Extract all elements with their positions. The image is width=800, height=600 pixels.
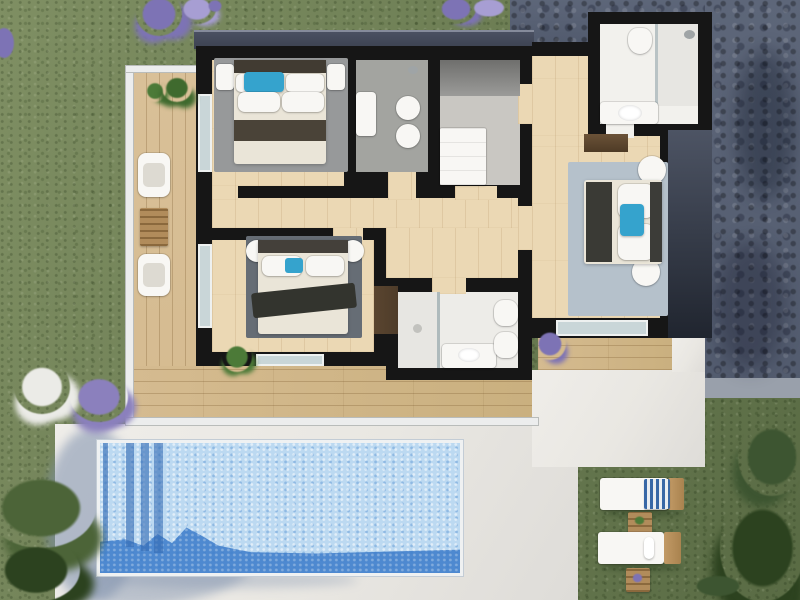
- pool-railing-shadow-1: [103, 443, 108, 543]
- armchair-2-seat: [143, 263, 165, 287]
- purple-flower-shrub: [70, 372, 128, 422]
- floor-hallway-2: [386, 228, 518, 278]
- door-bedroom-1: [212, 186, 238, 200]
- side-table-2-plant: [631, 572, 644, 584]
- terrace-window-2: [198, 244, 212, 328]
- bedroom-2-set: [246, 236, 362, 338]
- bush-bottom-right-1: [738, 418, 800, 496]
- sun-lounger-2: [598, 530, 682, 566]
- bidet-bathroom-1: [396, 124, 420, 148]
- pool-railing-shadow-3: [141, 443, 149, 551]
- floor-wing-hall: [532, 56, 588, 136]
- blue-pillow-bedroom-3: [620, 204, 644, 236]
- shower-glass-bathroom-3: [655, 24, 658, 106]
- potted-plant-bedroom-2: [222, 342, 252, 372]
- side-table-1-plant: [633, 515, 646, 526]
- blue-pillow-bedroom-1: [244, 72, 284, 92]
- tree-shadow-on-pavers-1: [736, 50, 794, 200]
- pillow-bedroom-1-a: [238, 92, 280, 112]
- shower-glass-bathroom-2: [437, 292, 440, 368]
- cabinet-bathroom-2: [374, 286, 398, 334]
- wardrobe-closet: [440, 60, 520, 96]
- patio-side-path: [672, 338, 705, 372]
- lounger-2-headrest: [664, 532, 681, 564]
- shower-head-bathroom-3: [684, 30, 695, 39]
- terrace-table: [140, 208, 168, 246]
- duvet-runner-bedroom-1: [234, 120, 326, 141]
- walls-bath2-extension: [386, 366, 532, 380]
- sink-bathroom-3: [618, 105, 642, 121]
- lounger-2-mattress: [598, 532, 664, 564]
- terrace-armchair-2: [138, 254, 170, 296]
- bush-bottom-left-2: [0, 538, 80, 600]
- throw-bedroom-2: [251, 283, 357, 319]
- terrace-armchair-1: [138, 153, 170, 197]
- door-closet: [455, 186, 497, 200]
- balustrade-west: [126, 66, 133, 424]
- bedroom-3-set: [568, 162, 668, 316]
- wing-south-window: [556, 320, 648, 336]
- lounger-1-striped-towel: [644, 479, 670, 509]
- tree-shadow-on-pavers-2: [715, 240, 785, 370]
- lounger-2-rolled-towel: [644, 537, 654, 559]
- toilet-bathroom-2: [494, 300, 518, 326]
- sink-bathroom-2: [458, 348, 480, 362]
- toilet-bathroom-1: [396, 96, 420, 120]
- nightstand-left-bedroom-1: [216, 64, 234, 90]
- sun-lounger-1: [600, 476, 684, 512]
- pool-railing-shadow-2: [126, 443, 134, 547]
- terrace-shrub-2: [162, 74, 192, 102]
- lounger-1-headrest: [668, 478, 684, 510]
- bed-bedroom-2: [258, 240, 348, 334]
- bedroom-1-set: [214, 58, 348, 172]
- pillow-bedroom-1-b: [282, 92, 324, 112]
- white-flower-shrub: [14, 360, 70, 414]
- balustrade-north: [126, 66, 206, 72]
- bed-bedroom-3: [584, 180, 662, 264]
- runner-bedroom-3: [586, 182, 612, 262]
- headboard-bedroom-3: [650, 182, 662, 262]
- bed-bedroom-1: [234, 60, 326, 164]
- armchair-1-seat: [143, 163, 165, 187]
- patio-east: [532, 370, 705, 467]
- floor-plan-render: [0, 0, 800, 600]
- balustrade-south: [126, 418, 538, 425]
- dresser-closet: [440, 128, 486, 185]
- pool-railing-shadow-4: [154, 443, 163, 553]
- nightstand-right-bedroom-1: [327, 64, 345, 90]
- door-bathroom-1: [388, 172, 416, 200]
- door-wing-upper: [518, 84, 532, 124]
- swimming-pool: [100, 443, 460, 573]
- bidet-bathroom-2: [494, 332, 518, 358]
- drain-bathroom-2: [413, 324, 422, 333]
- terrace-window-1: [198, 94, 212, 172]
- door-wing-lower: [518, 206, 532, 250]
- lavender-pot-wing: [534, 328, 566, 360]
- pool-edge-shadow: [108, 572, 358, 588]
- basin-bathroom-1: [356, 92, 376, 136]
- headboard-bedroom-2: [258, 240, 348, 253]
- shower-head-bathroom-1: [408, 66, 418, 74]
- east-wing-roof-edge: [668, 130, 712, 338]
- south-window: [256, 354, 324, 366]
- sideboard-bedroom-3: [584, 134, 628, 152]
- floor-hallway: [212, 198, 518, 228]
- toilet-bathroom-3: [628, 28, 652, 54]
- driveway-light-strip: [705, 378, 800, 398]
- blue-pillow-bedroom-2: [285, 258, 303, 273]
- pillow-bedroom-2-b: [306, 256, 344, 276]
- cushion-bedroom-1-b: [286, 74, 324, 92]
- bush-bottom-right-3: [688, 572, 748, 600]
